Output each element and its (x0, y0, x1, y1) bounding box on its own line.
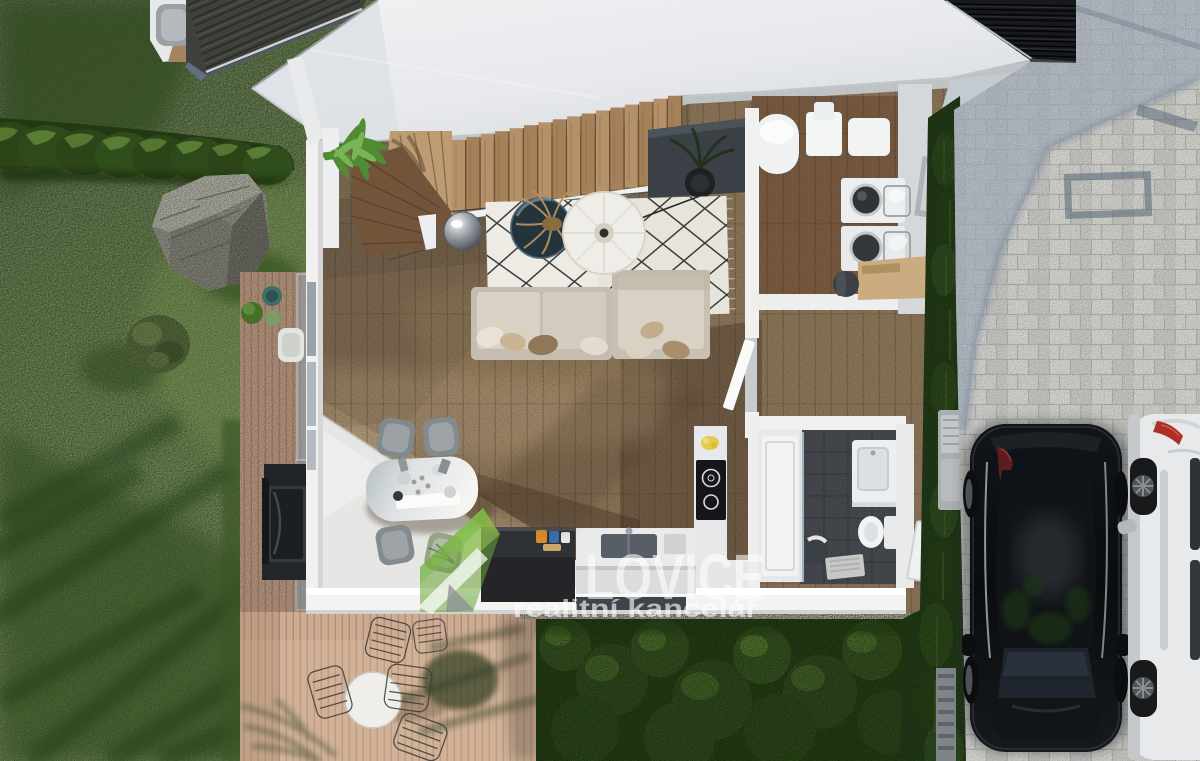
svg-text:realitní kancelář: realitní kancelář (513, 595, 758, 623)
